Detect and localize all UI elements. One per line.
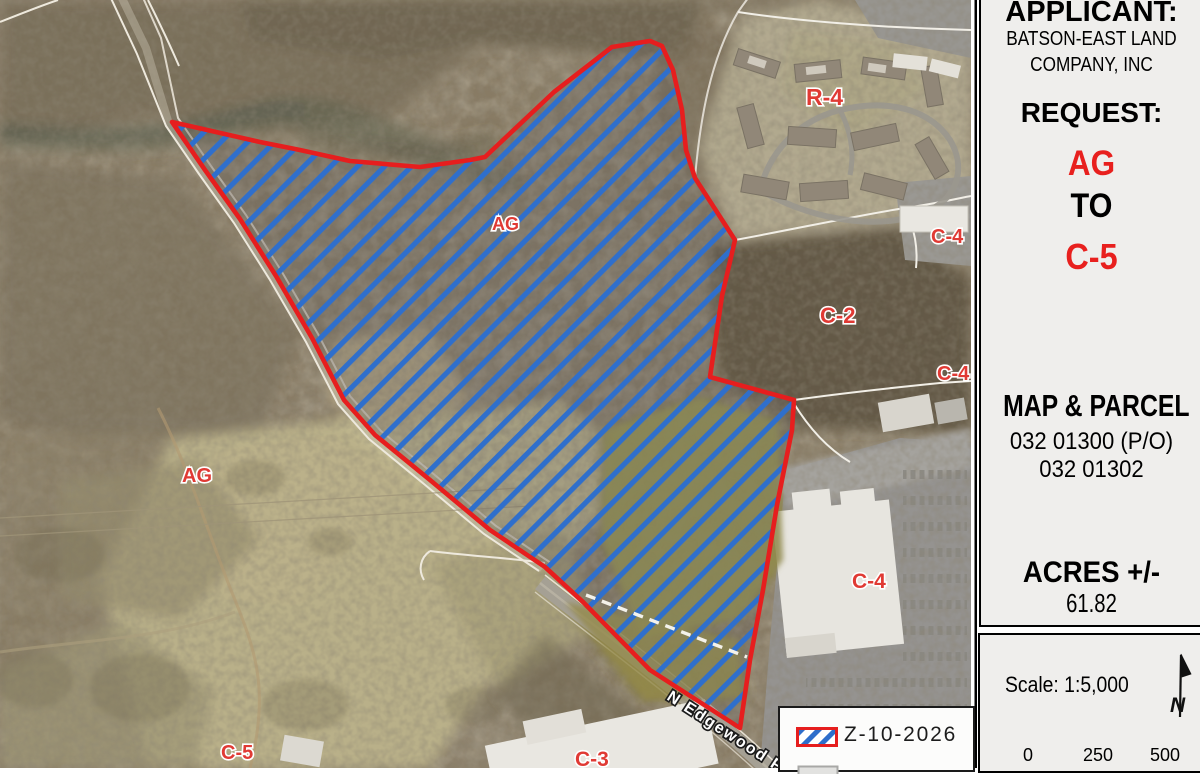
svg-text:C-4: C-4 <box>931 226 964 248</box>
svg-text:C-4: C-4 <box>852 570 886 593</box>
svg-text:C-3: C-3 <box>575 748 609 768</box>
svg-text:C-2: C-2 <box>820 303 855 328</box>
svg-text:N: N <box>1170 694 1186 717</box>
svg-text:AG: AG <box>182 465 212 487</box>
svg-text:C-5: C-5 <box>221 742 253 764</box>
svg-text:AG: AG <box>492 214 519 234</box>
svg-text:C-4: C-4 <box>937 363 970 385</box>
svg-text:R-4: R-4 <box>806 84 843 110</box>
